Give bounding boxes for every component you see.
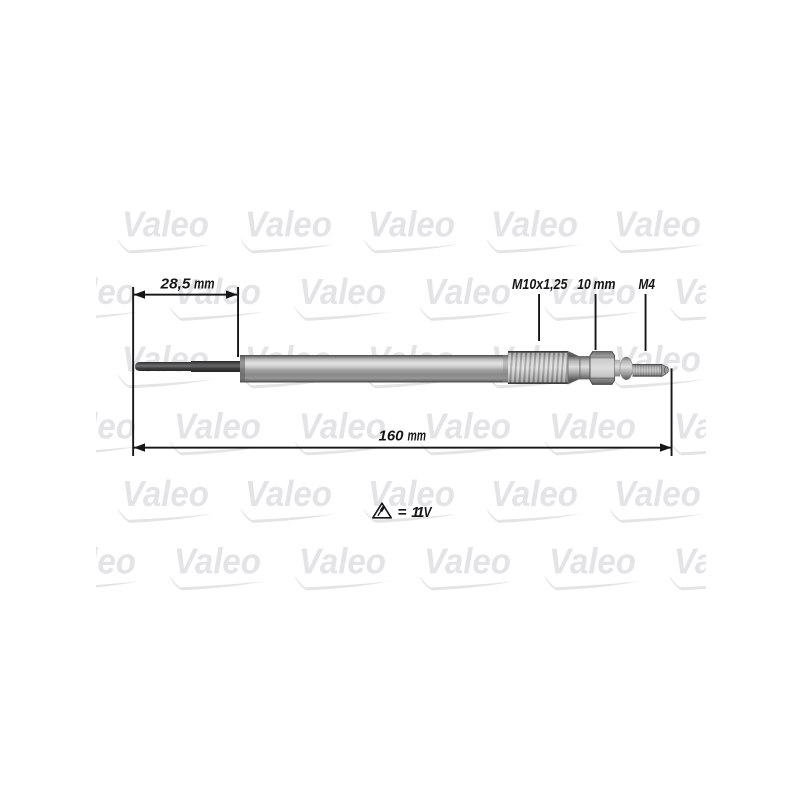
svg-text:mm: mm: [594, 276, 616, 293]
svg-text:M10x1,25: M10x1,25: [512, 276, 568, 293]
svg-text:Valeo: Valeo: [174, 407, 261, 447]
svg-text:Valeo: Valeo: [491, 205, 578, 245]
svg-text:Valeo: Valeo: [245, 205, 332, 245]
svg-text:Valeo: Valeo: [49, 273, 136, 313]
svg-text:Valeo: Valeo: [549, 407, 636, 447]
svg-text:10: 10: [577, 276, 591, 293]
svg-text:Valeo: Valeo: [368, 205, 455, 245]
svg-text:Valeo: Valeo: [245, 475, 332, 515]
svg-text:Valeo: Valeo: [674, 407, 761, 447]
svg-text:Valeo: Valeo: [299, 273, 386, 313]
svg-text:Valeo: Valeo: [424, 407, 511, 447]
svg-text:=: =: [398, 504, 407, 521]
svg-text:Valeo: Valeo: [424, 542, 511, 582]
svg-text:Valeo: Valeo: [614, 475, 701, 515]
svg-text:Valeo: Valeo: [49, 542, 136, 582]
svg-text:Valeo: Valeo: [614, 205, 701, 245]
svg-text:Valeo: Valeo: [49, 407, 136, 447]
svg-text:Valeo: Valeo: [122, 475, 209, 515]
svg-text:Valeo: Valeo: [299, 407, 386, 447]
svg-text:28,5: 28,5: [159, 276, 191, 293]
svg-text:Valeo: Valeo: [549, 542, 636, 582]
svg-text:Valeo: Valeo: [674, 273, 761, 313]
svg-text:Valeo: Valeo: [122, 340, 209, 380]
svg-text:Valeo: Valeo: [299, 542, 386, 582]
svg-text:Valeo: Valeo: [174, 542, 261, 582]
svg-text:Valeo: Valeo: [674, 542, 761, 582]
svg-text:Valeo: Valeo: [122, 205, 209, 245]
svg-text:M4: M4: [639, 276, 656, 293]
svg-text:mm: mm: [408, 428, 427, 445]
svg-text:Valeo: Valeo: [491, 475, 578, 515]
svg-text:160: 160: [379, 428, 405, 445]
svg-text:mm: mm: [194, 276, 215, 293]
svg-text:Valeo: Valeo: [424, 273, 511, 313]
